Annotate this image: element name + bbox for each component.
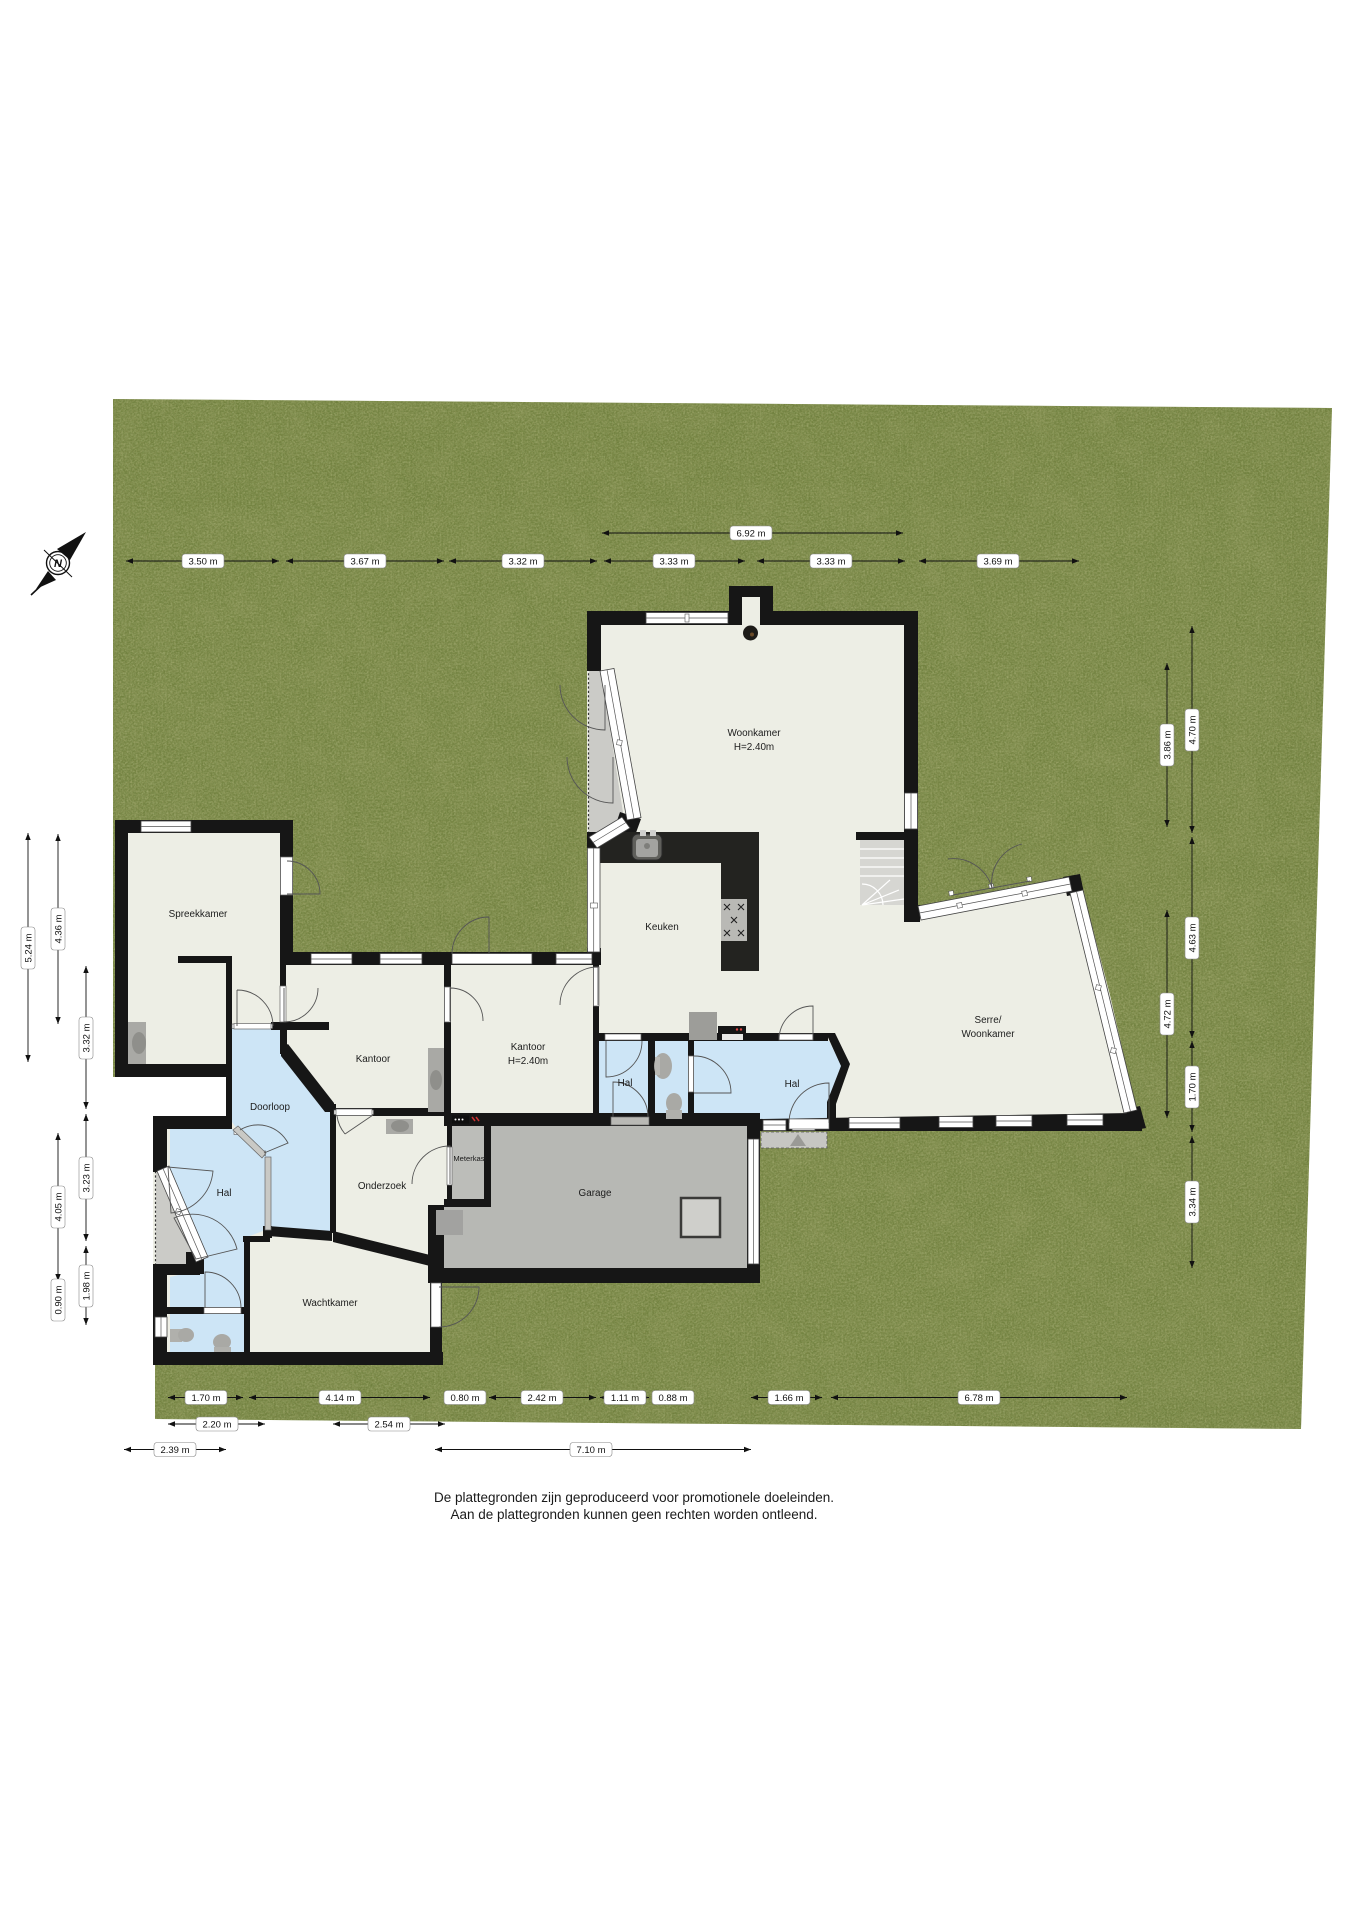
svg-text:3.33 m: 3.33 m <box>659 556 688 567</box>
svg-text:Serre/: Serre/ <box>975 1015 1002 1026</box>
svg-text:Wachtkamer: Wachtkamer <box>302 1298 358 1309</box>
svg-text:Spreekkamer: Spreekkamer <box>169 909 228 920</box>
svg-text:3.86 m: 3.86 m <box>1162 730 1173 759</box>
svg-text:Kantoor: Kantoor <box>356 1054 391 1065</box>
svg-text:Hal: Hal <box>785 1079 800 1090</box>
svg-text:3.67 m: 3.67 m <box>350 556 379 567</box>
svg-text:6.92 m: 6.92 m <box>736 528 765 539</box>
svg-text:1.70 m: 1.70 m <box>191 1393 220 1404</box>
svg-text:Woonkamer: Woonkamer <box>727 728 781 739</box>
svg-text:3.33 m: 3.33 m <box>816 556 845 567</box>
svg-text:3.32 m: 3.32 m <box>81 1023 92 1052</box>
svg-text:Hal: Hal <box>618 1078 633 1089</box>
svg-text:1.11 m: 1.11 m <box>611 1393 639 1404</box>
svg-text:3.34 m: 3.34 m <box>1187 1187 1198 1216</box>
svg-text:3.69 m: 3.69 m <box>983 556 1012 567</box>
svg-text:H=2.40m: H=2.40m <box>734 742 774 753</box>
svg-text:Keuken: Keuken <box>645 922 679 933</box>
svg-text:4.14 m: 4.14 m <box>325 1393 354 1404</box>
svg-text:0.80 m: 0.80 m <box>450 1393 479 1404</box>
svg-text:H=2.40m: H=2.40m <box>508 1056 548 1067</box>
svg-text:Woonkamer: Woonkamer <box>961 1029 1015 1040</box>
svg-text:4.72 m: 4.72 m <box>1162 999 1173 1028</box>
svg-text:4.05 m: 4.05 m <box>53 1192 64 1221</box>
svg-text:3.50 m: 3.50 m <box>188 556 217 567</box>
svg-text:Garage: Garage <box>579 1188 612 1199</box>
svg-text:1.98 m: 1.98 m <box>81 1271 92 1300</box>
svg-text:Onderzoek: Onderzoek <box>358 1181 406 1192</box>
svg-text:De plattegronden zijn geproduc: De plattegronden zijn geproduceerd voor … <box>434 1490 834 1505</box>
svg-text:3.32 m: 3.32 m <box>508 556 537 567</box>
svg-text:2.42 m: 2.42 m <box>527 1393 556 1404</box>
svg-text:6.78 m: 6.78 m <box>964 1393 993 1404</box>
svg-text:4.36 m: 4.36 m <box>53 914 64 943</box>
svg-text:2.54 m: 2.54 m <box>374 1419 403 1430</box>
svg-text:7.10 m: 7.10 m <box>576 1445 605 1456</box>
svg-text:2.20 m: 2.20 m <box>202 1419 231 1430</box>
svg-text:Meterkast: Meterkast <box>453 1154 487 1163</box>
svg-text:Kantoor: Kantoor <box>511 1042 546 1053</box>
svg-text:4.70 m: 4.70 m <box>1187 715 1198 744</box>
svg-text:Hal: Hal <box>217 1188 232 1199</box>
svg-text:2.39 m: 2.39 m <box>160 1445 189 1456</box>
svg-text:1.70 m: 1.70 m <box>1187 1072 1198 1101</box>
svg-text:1.66 m: 1.66 m <box>774 1393 803 1404</box>
svg-text:0.90 m: 0.90 m <box>53 1285 64 1314</box>
svg-text:N: N <box>54 558 63 570</box>
svg-text:Aan de plattegronden kunnen ge: Aan de plattegronden kunnen geen rechten… <box>450 1507 817 1522</box>
svg-text:Doorloop: Doorloop <box>250 1102 291 1113</box>
svg-text:0.88 m: 0.88 m <box>658 1393 687 1404</box>
svg-text:4.63 m: 4.63 m <box>1187 923 1198 952</box>
svg-text:3.23 m: 3.23 m <box>81 1163 92 1192</box>
svg-text:5.24 m: 5.24 m <box>23 933 34 962</box>
